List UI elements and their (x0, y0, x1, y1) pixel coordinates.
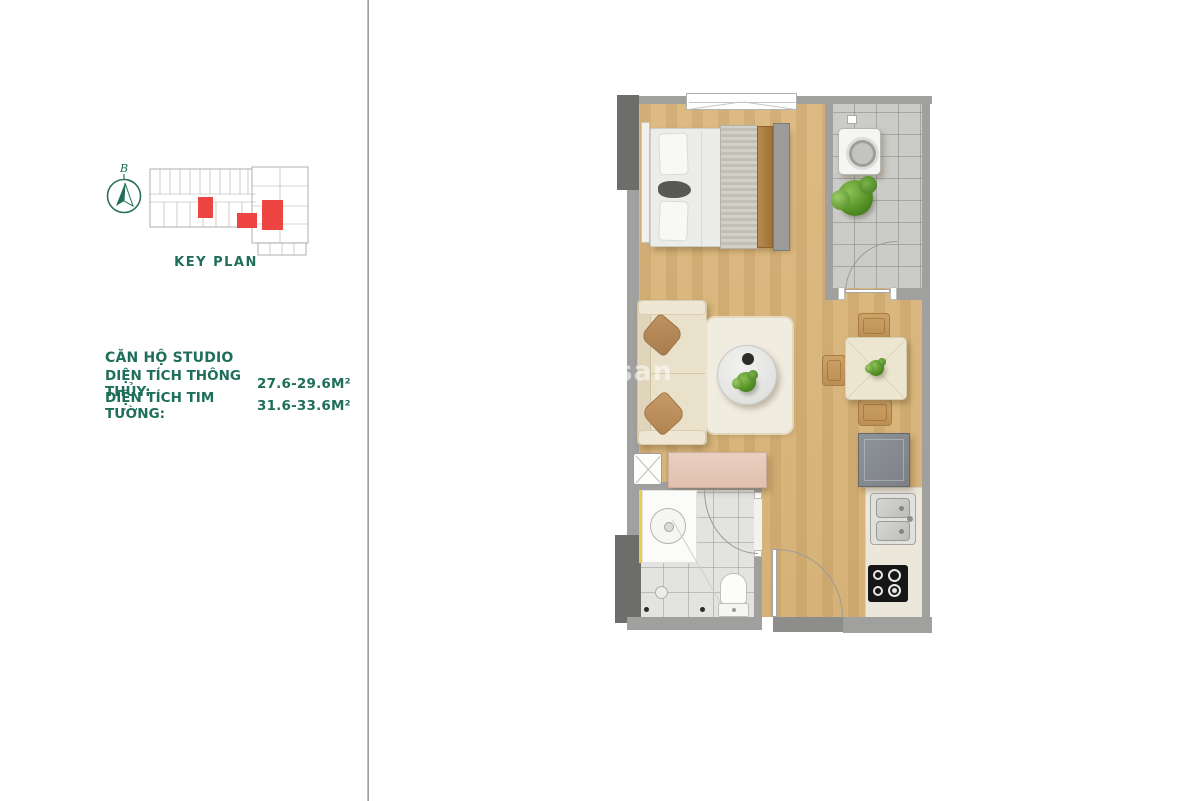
duvet-fold-line (701, 131, 702, 246)
balcony-plant (837, 180, 873, 216)
key-plan-drawing (140, 164, 310, 259)
refrigerator (858, 433, 910, 487)
column-top-left (617, 95, 639, 190)
burner (873, 586, 883, 596)
area-label: DIỆN TÍCH TIM TƯỜNG: (105, 390, 257, 422)
faucet (907, 516, 913, 522)
column-bottom-left (615, 535, 641, 623)
unit-info-block: CĂN HỘ STUDIO DIỆN TÍCH THÔNG THỦY: 27.6… (105, 350, 351, 417)
vanity-accent-strip (639, 490, 642, 563)
area-value: 31.6-33.6M² (257, 398, 351, 414)
floor-plan-sheet: B KEY PLAN (0, 0, 1194, 801)
unit-type-title: CĂN HỘ STUDIO (105, 350, 351, 366)
bed-foot-bench (773, 123, 790, 251)
dining-chair (858, 313, 890, 339)
floor-drain (644, 607, 649, 612)
bed-runner-silver (720, 125, 758, 249)
panel-divider-line (367, 0, 369, 801)
dining-table-plant (868, 360, 884, 376)
balcony-door-leaf (845, 289, 890, 293)
toilet-tank (718, 603, 749, 617)
wall-top-right (833, 96, 932, 104)
area-row: DIỆN TÍCH TIM TƯỜNG: 31.6-33.6M² (105, 395, 351, 417)
coffee-table-plant (736, 372, 756, 392)
area-value: 27.6-29.6M² (257, 376, 351, 392)
key-plan-title: KEY PLAN (131, 255, 301, 270)
watermark: gsan (596, 356, 673, 387)
bed-pillow (658, 133, 688, 176)
dining-chair (822, 355, 846, 386)
wall-bottom-left (627, 617, 762, 630)
bed-headboard (641, 122, 650, 243)
bed-throw-item (658, 181, 691, 198)
sofa-armrest (638, 430, 706, 445)
entry-threshold (773, 617, 843, 632)
toilet-bowl (720, 573, 747, 604)
burner (873, 570, 883, 580)
dining-chair (858, 399, 892, 426)
balcony-drain-box (847, 115, 857, 124)
sink-basin (876, 521, 910, 541)
bed-runner-brown (757, 126, 773, 248)
cooktop (868, 565, 908, 602)
sofa-armrest (638, 300, 706, 315)
technical-shaft (633, 453, 662, 485)
bathroom-sink (650, 508, 686, 544)
sideboard-cabinet (668, 452, 767, 488)
bedroom-window (686, 93, 797, 110)
wall-right (922, 96, 930, 633)
coffee-table-tray (742, 353, 754, 365)
shower-head (655, 586, 668, 599)
floor-drain (700, 607, 705, 612)
sink-basin (876, 498, 910, 518)
wall-balcony-bottom-b (897, 288, 922, 300)
kitchen-sink (870, 493, 916, 545)
burner (888, 569, 901, 582)
burner (888, 584, 901, 597)
bed-pillow (658, 201, 688, 242)
wall-bottom-right (843, 617, 932, 633)
balcony-door-jamb (838, 287, 845, 300)
compass-north-label: B (119, 162, 128, 175)
washing-machine (838, 128, 881, 175)
